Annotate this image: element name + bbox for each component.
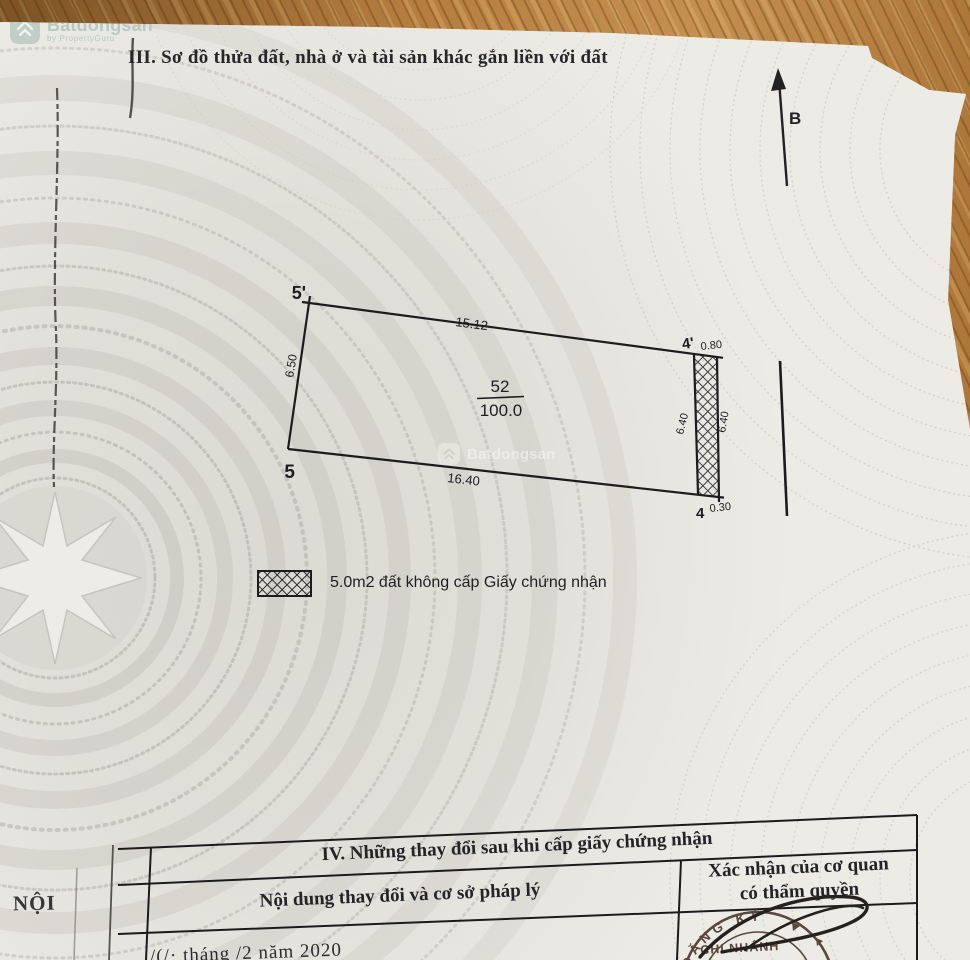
- north-arrow: B: [771, 68, 801, 186]
- brand-watermark-name: Batdongsan: [47, 15, 153, 36]
- dim-strip-bottom: 0.30: [709, 501, 732, 515]
- brand-watermark-center: Batdongsan: [438, 443, 556, 465]
- corner-label-5: 5: [284, 462, 295, 483]
- dim-strip-top: 0.80: [700, 339, 723, 353]
- road-boundary-line: [780, 361, 787, 516]
- brand-logo-icon-center: [438, 443, 460, 465]
- corner-label-4: 4: [696, 505, 705, 522]
- parcel-edge-top: [302, 302, 723, 358]
- table-column-divider: [677, 860, 681, 960]
- brand-watermark-center-name: Batdongsan: [467, 446, 556, 463]
- side-text-noi: NỘI: [13, 891, 56, 917]
- section3-title: III. Sơ đồ thửa đất, nhà ở và tài sản kh…: [128, 47, 748, 69]
- north-label: B: [789, 109, 801, 128]
- north-arrow-head: [771, 68, 786, 91]
- photo-of-land-certificate: B 5' 5 4' 4 0.80 0.30 15.12 1: [0, 0, 970, 960]
- certificate-page: B 5' 5 4' 4 0.80 0.30 15.12 1: [0, 0, 970, 960]
- brand-watermark-topleft: Batdongsan by PropertyGuru: [10, 14, 153, 44]
- dim-strip-outer: 6.40: [716, 410, 732, 433]
- drum-watermark-pattern: [0, 8, 625, 960]
- dim-top: 15.12: [455, 314, 489, 333]
- legend-hatch-swatch: [258, 571, 311, 596]
- parcel-number: 52: [491, 377, 510, 396]
- legend-label: 5.0m2 đất không cấp Giấy chứng nhận: [330, 574, 650, 592]
- guilloche-arcs-top-right: [610, 0, 970, 560]
- dim-strip-inner: 6.40: [674, 412, 691, 436]
- parcel-area: 100.0: [480, 401, 523, 420]
- corner-label-5p: 5': [292, 283, 306, 303]
- corner-label-4p: 4': [681, 335, 695, 353]
- brand-logo-icon: [10, 14, 40, 44]
- page-graphics: B 5' 5 4' 4 0.80 0.30 15.12 1: [0, 0, 970, 960]
- dim-left: 6.50: [282, 353, 300, 379]
